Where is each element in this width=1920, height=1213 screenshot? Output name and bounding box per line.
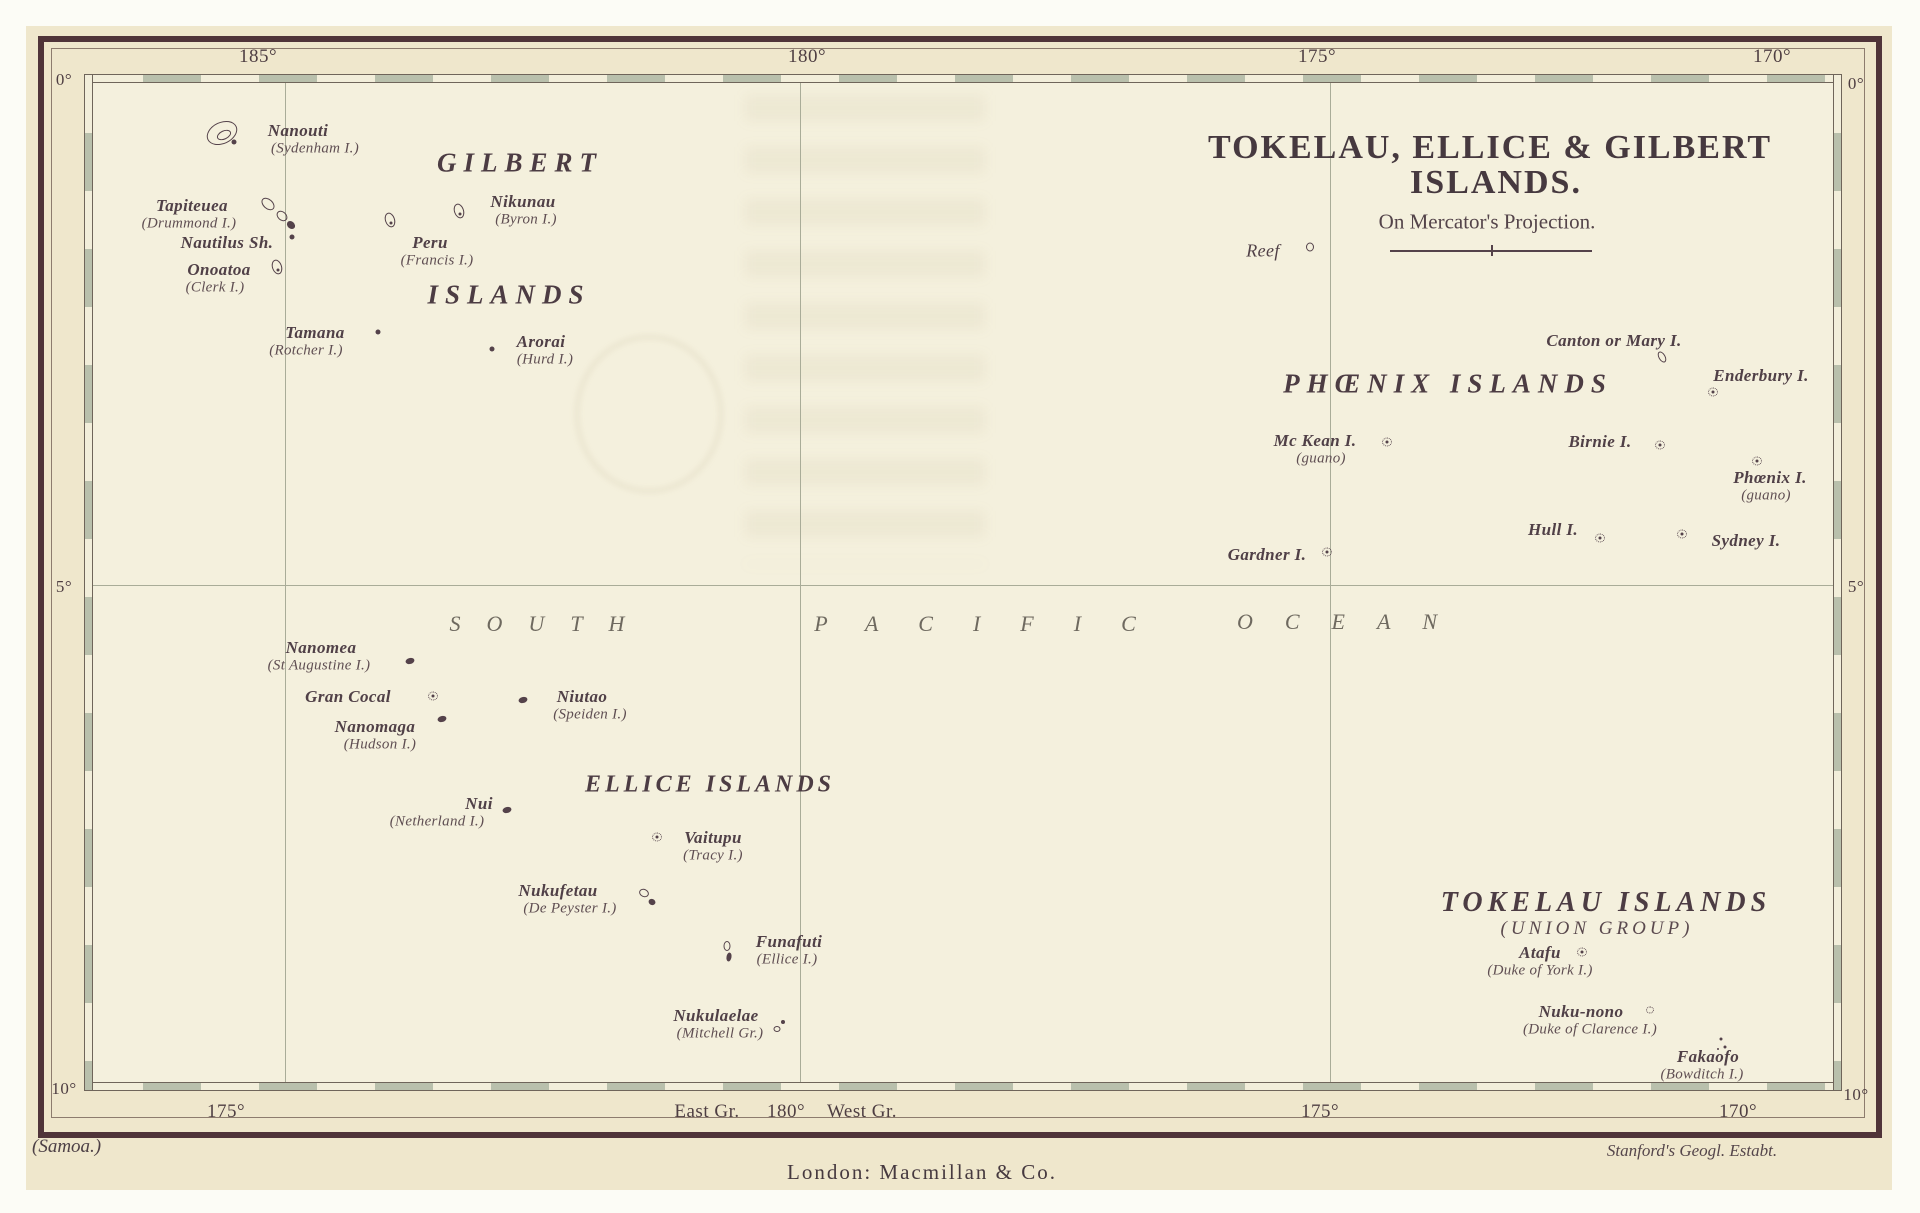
symbol-part: [1581, 951, 1584, 954]
margin-note-samoa: (Samoa.): [32, 1136, 101, 1158]
island-name-nui: Nui: [465, 794, 493, 814]
island-name-nukufetau: Nukufetau: [518, 881, 597, 901]
publisher-imprint: London: Macmillan & Co.: [787, 1160, 1057, 1185]
ocean-word-ocean: OCEAN: [1237, 609, 1469, 635]
island-altname-nikunau: (Byron I.): [495, 212, 557, 229]
island-name-hull-i: Hull I.: [1528, 520, 1578, 540]
island-name-sydney-i: Sydney I.: [1712, 531, 1781, 551]
island-altname-peru: (Francis I.): [401, 253, 474, 270]
group-label-ph-nix-islands: PHŒNIX ISLANDS: [1283, 369, 1613, 400]
island-name-funafuti: Funafuti: [756, 932, 823, 952]
island-name-fakaofo: Fakaofo: [1677, 1047, 1739, 1067]
symbol-part: [724, 941, 731, 951]
left-degree-label-5-1: 5°: [56, 577, 72, 597]
graduated-border-right: [1833, 74, 1842, 1091]
island-name-reef: Reef: [1246, 241, 1280, 262]
symbol-part: [232, 140, 237, 145]
island-altname-atafu: (Duke of York I.): [1487, 963, 1592, 980]
bottom-degree-label-180-2: 180°: [767, 1101, 805, 1123]
island-name-nukulaelae: Nukulaelae: [673, 1006, 758, 1026]
bottom-degree-label-175-4: 175°: [1301, 1101, 1339, 1123]
group-label-ellice-islands: ELLICE ISLANDS: [585, 772, 835, 799]
symbol-part: [1681, 533, 1684, 536]
island-altname-niutao: (Speiden I.): [553, 707, 627, 724]
island-name-nanouti: Nanouti: [268, 121, 328, 141]
island-name-enderbury-i: Enderbury I.: [1713, 366, 1809, 386]
top-degree-label-180-1: 180°: [788, 46, 826, 68]
graduated-border-left: [84, 74, 93, 1091]
island-name-gardner-i: Gardner I.: [1228, 545, 1307, 565]
symbol-part: [376, 330, 381, 335]
island-name-vaitupu: Vaitupu: [684, 828, 742, 848]
symbol-part: [1659, 444, 1662, 447]
island-name-tapiteuea: Tapiteuea: [156, 196, 228, 216]
group-label-islands: ISLANDS: [427, 280, 590, 311]
island-altname-mc-kean-i: (guano): [1296, 451, 1346, 468]
symbol-part: [290, 235, 295, 240]
bottom-degree-label-175-0: 175°: [207, 1101, 245, 1123]
top-degree-label-170-3: 170°: [1753, 46, 1791, 68]
island-name-nikunau: Nikunau: [490, 192, 555, 212]
group-label-gilbert: GILBERT: [437, 148, 603, 179]
island-altname-nui: (Netherland I.): [390, 814, 484, 831]
ocean-word-pacific: PACIFIC: [814, 611, 1175, 637]
island-name-nanomea: Nanomea: [286, 638, 357, 658]
scale-bar-tick: [1491, 245, 1493, 256]
map-subtitle: On Mercator's Projection.: [1379, 210, 1596, 235]
island-name-canton-or-mary-i: Canton or Mary I.: [1546, 331, 1681, 351]
symbol-part: [1724, 1046, 1727, 1049]
island-name-birnie-i: Birnie I.: [1568, 432, 1631, 452]
inner-border-line: [51, 48, 1865, 1118]
symbol-part: [1712, 391, 1715, 394]
island-name-niutao: Niutao: [557, 687, 608, 707]
symbol-part: [1720, 1038, 1723, 1041]
island-altname-arorai: (Hurd I.): [517, 352, 573, 369]
right-degree-label-5-1: 5°: [1848, 577, 1864, 597]
top-degree-label-175-2: 175°: [1298, 46, 1336, 68]
group-label-union-group: (UNION GROUP): [1501, 918, 1694, 940]
left-degree-label-10-2: 10°: [51, 1079, 76, 1099]
symbol-part: [1326, 551, 1329, 554]
island-name-onoatoa: Onoatoa: [187, 260, 250, 280]
island-name-nuku-nono: Nuku-nono: [1539, 1002, 1624, 1022]
map-title-line2: ISLANDS.: [1410, 164, 1582, 202]
symbol-part: [490, 347, 495, 352]
symbol-part: [459, 213, 462, 216]
left-degree-label-0-0: 0°: [56, 70, 72, 90]
island-name-mc-kean-i: Mc Kean I.: [1274, 431, 1357, 451]
island-altname-nanouti: (Sydenham I.): [271, 141, 359, 158]
symbol-part: [774, 1026, 781, 1032]
island-name-peru: Peru: [412, 233, 448, 253]
bottom-degree-label-170-5: 170°: [1719, 1101, 1757, 1123]
island-name-nanomaga: Nanomaga: [335, 717, 416, 737]
top-degree-label-185-0: 185°: [239, 46, 277, 68]
island-name-arorai: Arorai: [517, 332, 566, 352]
group-label-tokelau-islands: TOKELAU ISLANDS: [1441, 887, 1771, 919]
engraver-credit: Stanford's Geogl. Estabt.: [1607, 1141, 1777, 1161]
island-name-atafu: Atafu: [1519, 943, 1561, 963]
island-altname-fakaofo: (Bowditch I.): [1660, 1067, 1743, 1084]
symbol-part: [1717, 1048, 1719, 1050]
island-name-gran-cocal: Gran Cocal: [305, 687, 391, 707]
bottom-degree-label-east-gr-1: East Gr.: [674, 1101, 739, 1123]
island-altname-funafuti: (Ellice I.): [757, 952, 818, 969]
map-root: TOKELAU, ELLICE & GILBERT ISLANDS. On Me…: [0, 0, 1920, 1213]
right-degree-label-10-2: 10°: [1843, 1085, 1868, 1105]
symbol-part: [390, 222, 393, 225]
symbol-part: [1756, 460, 1759, 463]
island-altname-nanomea: (St Augustine I.): [268, 658, 371, 675]
island-name-tamana: Tamana: [285, 323, 344, 343]
bottom-degree-label-west-gr-3: West Gr.: [827, 1101, 897, 1123]
symbol-part: [1386, 441, 1389, 444]
graduated-border-bottom: [84, 1082, 1842, 1091]
symbol-part: [781, 1020, 785, 1024]
island-altname-tapiteuea: (Drummond I.): [142, 216, 237, 233]
right-degree-label-0-0: 0°: [1848, 74, 1864, 94]
symbol-part: [1646, 1007, 1654, 1014]
island-altname-nukulaelae: (Mitchell Gr.): [677, 1026, 764, 1043]
island-altname-nukufetau: (De Peyster I.): [523, 901, 616, 918]
island-altname-ph-nix-i: (guano): [1741, 488, 1791, 505]
island-altname-nuku-nono: (Duke of Clarence I.): [1523, 1022, 1657, 1039]
island-altname-tamana: (Rotcher I.): [269, 343, 343, 360]
island-altname-nanomaga: (Hudson I.): [344, 737, 416, 754]
map-title-line1: TOKELAU, ELLICE & GILBERT: [1208, 129, 1772, 167]
island-name-nautilus-sh: Nautilus Sh.: [181, 233, 274, 253]
symbol-part: [277, 269, 280, 272]
symbol-part: [656, 836, 659, 839]
graduated-border-top: [84, 74, 1842, 83]
symbol-part: [432, 695, 435, 698]
symbol-part: [1306, 243, 1314, 252]
island-altname-onoatoa: (Clerk I.): [186, 280, 245, 297]
ocean-word-south: SOUTH: [450, 611, 651, 637]
island-name-ph-nix-i: Phœnix I.: [1733, 468, 1807, 488]
island-altname-vaitupu: (Tracy I.): [683, 848, 743, 865]
symbol-part: [1599, 537, 1602, 540]
